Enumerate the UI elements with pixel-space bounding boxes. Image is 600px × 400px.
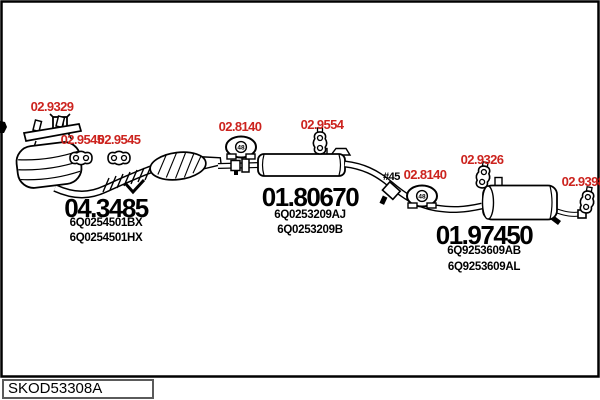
- part-number: 6Q9253609AB: [404, 245, 564, 257]
- part-number: 6Q0254501HX: [26, 232, 186, 244]
- part-number: 6Q0254501BX: [26, 217, 186, 229]
- part-label-mount-middle: 02.8140: [208, 120, 272, 134]
- edge-flange-fragment: [0, 121, 7, 133]
- exhaust-system-diagram: 48 48 02.9329 02.9545 02.9545 02.8140 02…: [0, 0, 600, 400]
- diagram-code-box: SKOD53308A: [2, 379, 154, 399]
- intermediate-pipe: [218, 159, 262, 175]
- part-label-hanger-front-right: 02.9545: [87, 133, 151, 147]
- part-number: 6Q0253209B: [230, 224, 390, 236]
- section-code-middle: 01.80670: [230, 184, 390, 211]
- part-number: 6Q0253209AJ: [230, 209, 390, 221]
- clamp-note: #45: [383, 171, 400, 183]
- mount-bracket-icon-rear: 48: [407, 186, 437, 209]
- middle-muffler: [258, 149, 350, 177]
- center-catalyst: [149, 147, 223, 182]
- part-label-mount-rear: 02.8140: [393, 168, 457, 182]
- mount-marking: 48: [418, 193, 426, 200]
- rubber-hanger-icon-tail: [578, 186, 596, 214]
- clamp-bolt: [234, 170, 238, 175]
- mount-marking: 48: [237, 144, 245, 151]
- part-label-hanger-rear: 02.9326: [450, 153, 514, 167]
- mount-bracket-icon-middle: 48: [226, 137, 256, 160]
- part-label-hanger-tail: 02.9398: [551, 175, 600, 189]
- diagram-code: SKOD53308A: [8, 380, 102, 397]
- part-label-gasket-front: 02.9329: [20, 100, 84, 114]
- part-label-hanger-middle: 02.9554: [290, 118, 354, 132]
- rubber-hanger-icon-front-right: [108, 151, 130, 164]
- rubber-hanger-icon-front-left: [70, 151, 92, 164]
- part-number: 6Q9253609AL: [404, 261, 564, 273]
